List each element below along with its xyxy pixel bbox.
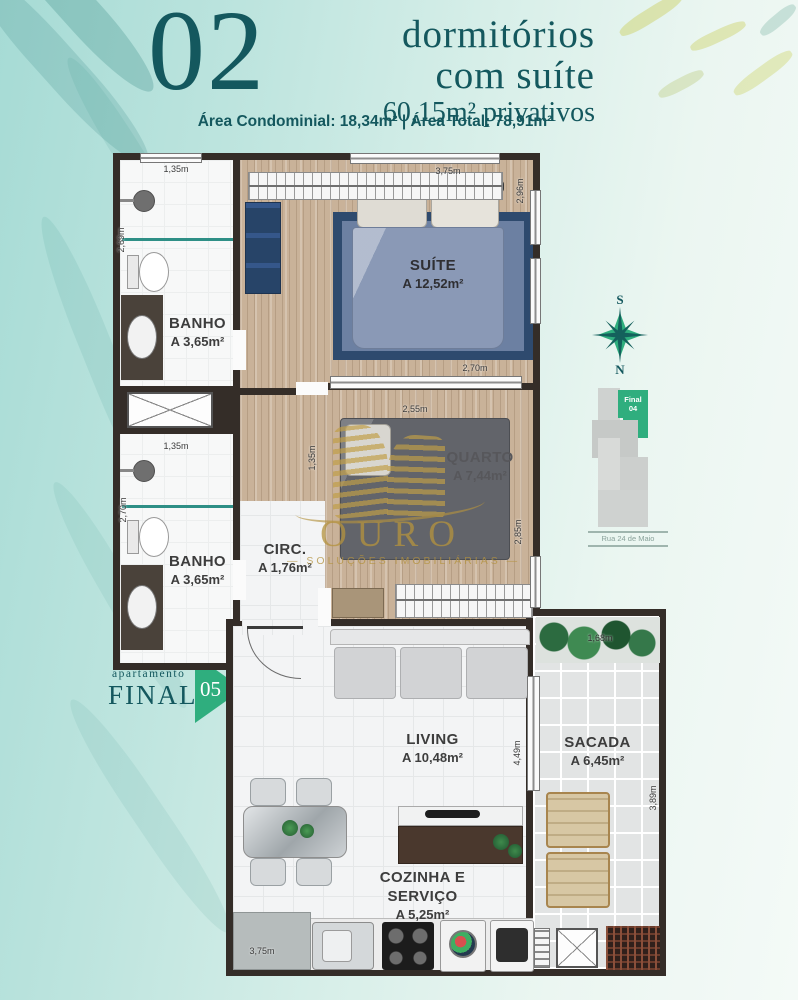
laundry-tank — [233, 912, 311, 970]
palm-frond-decoration — [731, 47, 796, 99]
key-plan-block — [620, 457, 648, 490]
shower-glass-divider — [122, 505, 233, 508]
palm-frond-decoration — [656, 67, 706, 101]
room-name-line-2: SERVIÇO — [355, 887, 490, 906]
quarto-door-opening — [318, 588, 331, 626]
dimension-label: 1,35m — [307, 433, 317, 483]
dining-chair — [250, 858, 286, 886]
palm-frond-decoration — [688, 18, 747, 54]
key-plan: Final 04 Rua 24 de Maio — [585, 385, 675, 565]
room-area: A 3,65m² — [150, 333, 245, 350]
suite-door-opening — [296, 382, 328, 395]
room-name: SACADA — [545, 733, 650, 752]
compass-north-label: N — [615, 363, 624, 377]
table-plant — [300, 824, 314, 838]
final-tag-number: 05 — [200, 677, 221, 702]
sofa-cushion — [400, 647, 462, 699]
sink-symbol — [127, 585, 157, 629]
key-plan-block — [598, 490, 648, 527]
headline: dormitórios com suíte 60,15m² privativos — [290, 14, 595, 129]
dimension-label: 1,35m — [140, 441, 212, 451]
kitchen-sink-basin — [322, 930, 352, 962]
room-area: A 6,45m² — [545, 752, 650, 769]
room-label-sacada: SACADA A 6,45m² — [545, 733, 650, 769]
suite-sill-window — [330, 376, 522, 389]
room-name: BANHO — [150, 314, 245, 333]
dimension-label: 2,96m — [515, 166, 525, 216]
balcony-shaft-symbol — [556, 928, 598, 968]
suite-window-right-2 — [530, 258, 541, 324]
dimension-label: 3,75m — [232, 946, 292, 956]
key-plan-block — [598, 438, 620, 490]
palm-frond-decoration — [617, 0, 685, 40]
dimension-label: 3,89m — [648, 773, 658, 823]
dimension-label: 1,68m — [565, 633, 635, 643]
room-label-banho-2: BANHO A 3,65m² — [150, 552, 245, 588]
lounge-chair — [546, 852, 610, 908]
dimension-label: 2,70m — [445, 363, 505, 373]
dimension-label: 3,75m — [408, 166, 488, 176]
room-name: BANHO — [150, 552, 245, 571]
dining-chair — [250, 778, 286, 806]
room-area: A 3,65m² — [150, 571, 245, 588]
lounge-chair — [546, 792, 610, 848]
banho1-window — [140, 153, 202, 163]
palm-frond-decoration — [757, 1, 798, 38]
shower-head-symbol — [133, 190, 155, 212]
key-plan-unit-highlight: Final 04 — [618, 390, 648, 418]
quarto-window-right — [530, 556, 541, 608]
palm-leaf-decoration — [0, 0, 166, 103]
sofa-cushion — [466, 647, 528, 699]
room-label-living: LIVING A 10,48m² — [375, 730, 490, 766]
balcony-louver — [534, 928, 550, 968]
suite-window-right-1 — [530, 190, 541, 245]
room-name: LIVING — [375, 730, 490, 749]
floor-plan-page: 02 dormitórios com suíte 60,15m² privati… — [0, 0, 798, 1000]
counter-plant — [508, 844, 522, 858]
quarto-bed-pillow — [345, 424, 391, 476]
room-label-circ: CIRC. A 1,76m² — [240, 540, 330, 576]
room-area: A 5,25m² — [355, 906, 490, 923]
palm-leaf-decoration — [0, 0, 162, 176]
headline-line-2: com suíte — [290, 55, 595, 96]
room-area: A 12,52m² — [368, 275, 498, 292]
compass: S N — [588, 293, 652, 377]
sofa-cushion — [334, 647, 396, 699]
dining-chair — [296, 858, 332, 886]
cooktop — [382, 922, 434, 970]
table-plant — [282, 820, 298, 836]
suite-window-top — [350, 153, 500, 164]
unit-count-number: 02 — [148, 0, 266, 108]
dimension-label: 2,70m — [118, 485, 128, 535]
dimension-label: 2,69m — [116, 215, 126, 265]
suite-wardrobe — [248, 172, 503, 200]
headline-line-1: dormitórios — [290, 14, 595, 55]
oven-door — [496, 928, 528, 962]
room-name: SUÍTE — [368, 256, 498, 275]
suite-cabinet — [245, 202, 281, 294]
compass-rose-icon — [592, 307, 648, 363]
room-area: A 10,48m² — [375, 749, 490, 766]
areas-summary-line: Área Condominial: 18,34m² | Área Total: … — [140, 113, 610, 131]
sofa-back — [330, 629, 530, 645]
dimension-label: 1,35m — [140, 164, 212, 174]
unit-highlight-line-2: 04 — [618, 404, 648, 413]
washing-machine-door — [449, 930, 477, 958]
room-label-cozinha: COZINHA E SERVIÇO A 5,25m² — [355, 868, 490, 923]
dimension-label: 2,55m — [380, 404, 450, 414]
room-area: A 1,76m² — [240, 559, 330, 576]
dimension-label: 2,85m — [513, 507, 523, 557]
room-label-quarto: QUARTO A 7,44m² — [420, 448, 540, 484]
street-line — [588, 531, 668, 533]
dimension-label: 4,49m — [512, 728, 522, 778]
final-tag-big-text: FINAL — [108, 680, 198, 711]
toilet-bowl-symbol — [139, 517, 169, 557]
shower-arm-symbol — [120, 469, 134, 472]
room-name-line-1: COZINHA E — [355, 868, 490, 887]
compass-south-label: S — [616, 293, 623, 307]
dining-chair — [296, 778, 332, 806]
balcony-grate — [606, 926, 660, 970]
shower-head-symbol — [133, 460, 155, 482]
entry-door-leaf — [247, 626, 303, 629]
toilet-tank-symbol — [127, 255, 139, 289]
quarto-wardrobe — [395, 584, 533, 618]
street-label: Rua 24 de Maio — [588, 534, 668, 543]
toilet-bowl-symbol — [139, 252, 169, 292]
shower-glass-divider — [122, 238, 233, 241]
quarto-dresser — [332, 588, 384, 618]
counter-plant — [493, 834, 509, 850]
faucet-symbol — [425, 810, 480, 818]
palm-leaf-decoration — [58, 691, 241, 941]
sacada-sliding-door — [527, 676, 540, 791]
room-name: QUARTO — [420, 448, 540, 467]
street-line — [588, 545, 668, 547]
room-name: CIRC. — [240, 540, 330, 559]
unit-highlight-line-1: Final — [618, 395, 648, 404]
room-area: A 7,44m² — [420, 467, 540, 484]
room-label-banho-1: BANHO A 3,65m² — [150, 314, 245, 350]
room-label-suite: SUÍTE A 12,52m² — [368, 256, 498, 292]
shower-arm-symbol — [120, 199, 134, 202]
toilet-tank-symbol — [127, 520, 139, 554]
shaft-symbol — [127, 392, 213, 428]
